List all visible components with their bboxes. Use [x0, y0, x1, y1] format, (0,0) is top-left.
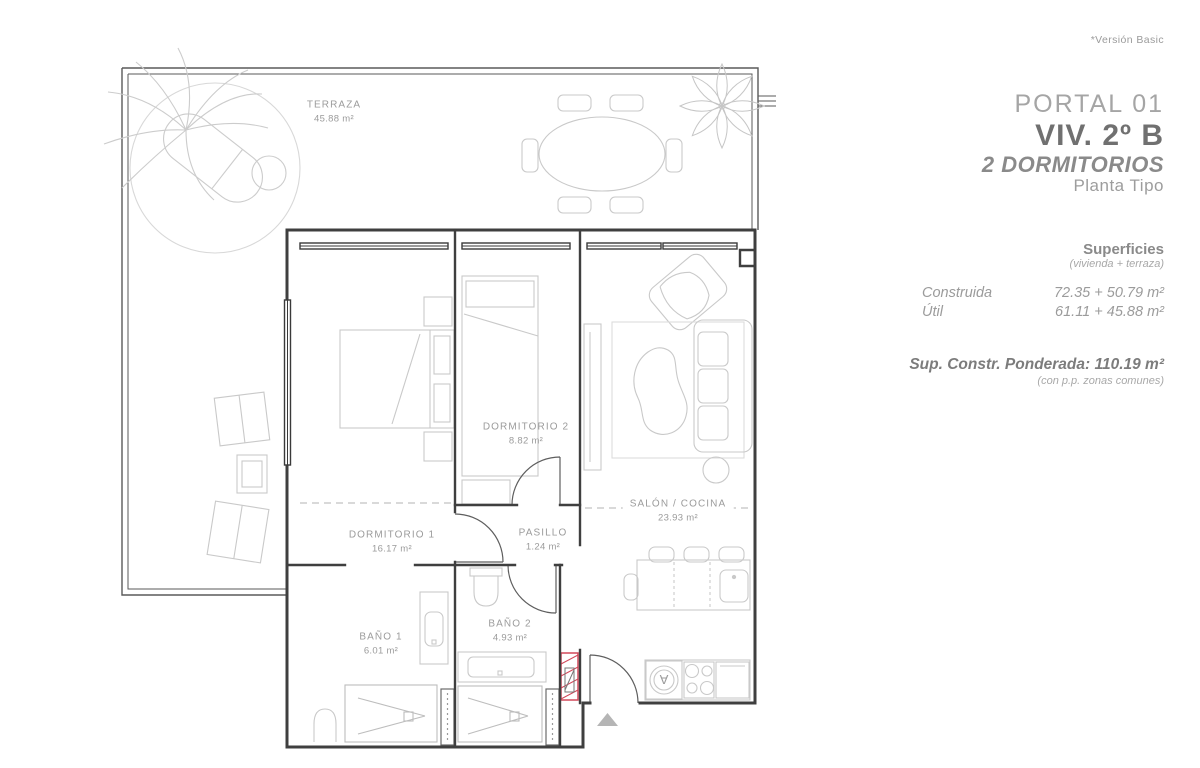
washer-symbol: A [659, 672, 668, 687]
weighted-surface-note: (con p.p. zonas comunes) [1037, 375, 1164, 387]
bedroom1-furniture [340, 297, 454, 461]
surface-row-util: Útil 61.11 + 45.88 m² [922, 304, 1164, 320]
info-panel: *Versión Basic PORTAL 01 VIV. 2º B 2 DOR… [834, 0, 1164, 768]
plan-type-subtitle: Planta Tipo [1073, 176, 1164, 196]
weighted-surface: Sup. Constr. Ponderada: 110.19 m² [909, 356, 1164, 374]
terrace-railing [122, 68, 776, 595]
bedrooms-subtitle: 2 DORMITORIOS [982, 152, 1164, 178]
kitchen-furniture: A [624, 547, 750, 700]
living-furniture [584, 250, 752, 483]
ventilation-shafts [441, 689, 559, 745]
floor-plan-drawing: A [0, 0, 820, 768]
terrace-chairs [207, 392, 270, 563]
version-note: *Versión Basic [1091, 34, 1164, 46]
floor-plan: A [0, 0, 820, 768]
highlighted-shaft [561, 653, 578, 700]
unit-title: VIV. 2º B [1035, 119, 1164, 153]
surface-label: Construida [922, 285, 992, 301]
bath1-fixtures [314, 592, 448, 742]
floorplan-page: { "version_note": "*Versión Basic", "hea… [0, 0, 1200, 768]
corner-plant-icon [680, 64, 764, 148]
portal-title: PORTAL 01 [1014, 90, 1164, 119]
entrance-arrow-icon [597, 713, 618, 726]
surfaces-subtitle: (vivienda + terraza) [1070, 258, 1164, 270]
terrace-lounger [153, 104, 286, 212]
palm-tree [104, 48, 300, 253]
surface-label: Útil [922, 304, 943, 320]
dining-set [522, 95, 682, 213]
surface-row-construida: Construida 72.35 + 50.79 m² [922, 285, 1164, 301]
surface-value: 72.35 + 50.79 m² [1054, 285, 1164, 301]
surface-value: 61.11 + 45.88 m² [1055, 304, 1164, 320]
bath2-fixtures [458, 568, 546, 742]
zone-dashed-lines [300, 503, 752, 508]
surfaces-title: Superficies [1083, 241, 1164, 258]
